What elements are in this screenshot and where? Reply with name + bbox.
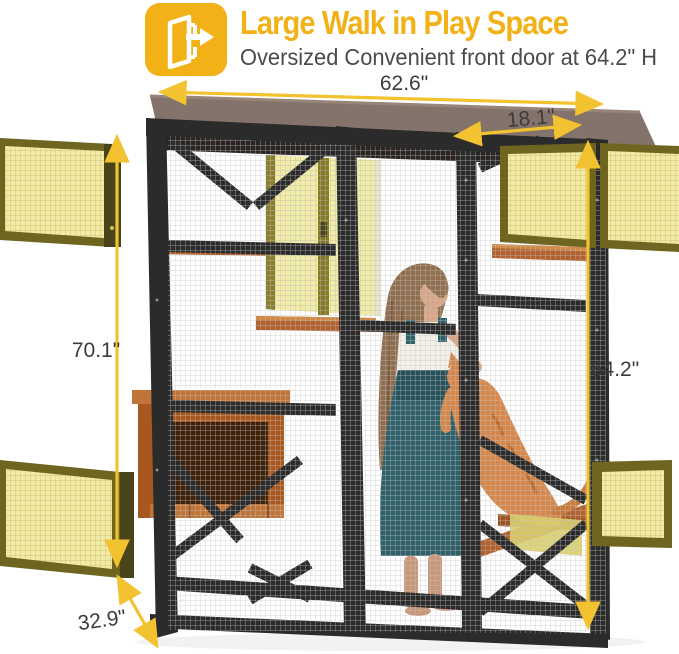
- dimension-front-door-height: 64.2": [591, 358, 639, 382]
- open-door-bottom-left: [0, 460, 134, 578]
- page-subtitle: Oversized Convenient front door at 64.2"…: [240, 44, 657, 71]
- open-door-top-left: [0, 138, 121, 247]
- product-infographic: Large Walk in Play Space Oversized Conve…: [0, 0, 679, 654]
- open-door-front-right-lower: [592, 460, 672, 548]
- header: Large Walk in Play Space Oversized Conve…: [145, 3, 679, 76]
- door-arrow-glyph: [156, 11, 216, 69]
- dimension-top-width: 62.6": [380, 72, 428, 96]
- walk-in-door-icon: [145, 3, 227, 76]
- header-text: Large Walk in Play Space Oversized Conve…: [240, 3, 679, 71]
- dimension-left-height: 70.1": [72, 339, 120, 363]
- catio-illustration: [0, 0, 679, 654]
- page-title: Large Walk in Play Space: [240, 5, 568, 42]
- dimension-front-door-width: 18.1": [506, 105, 556, 133]
